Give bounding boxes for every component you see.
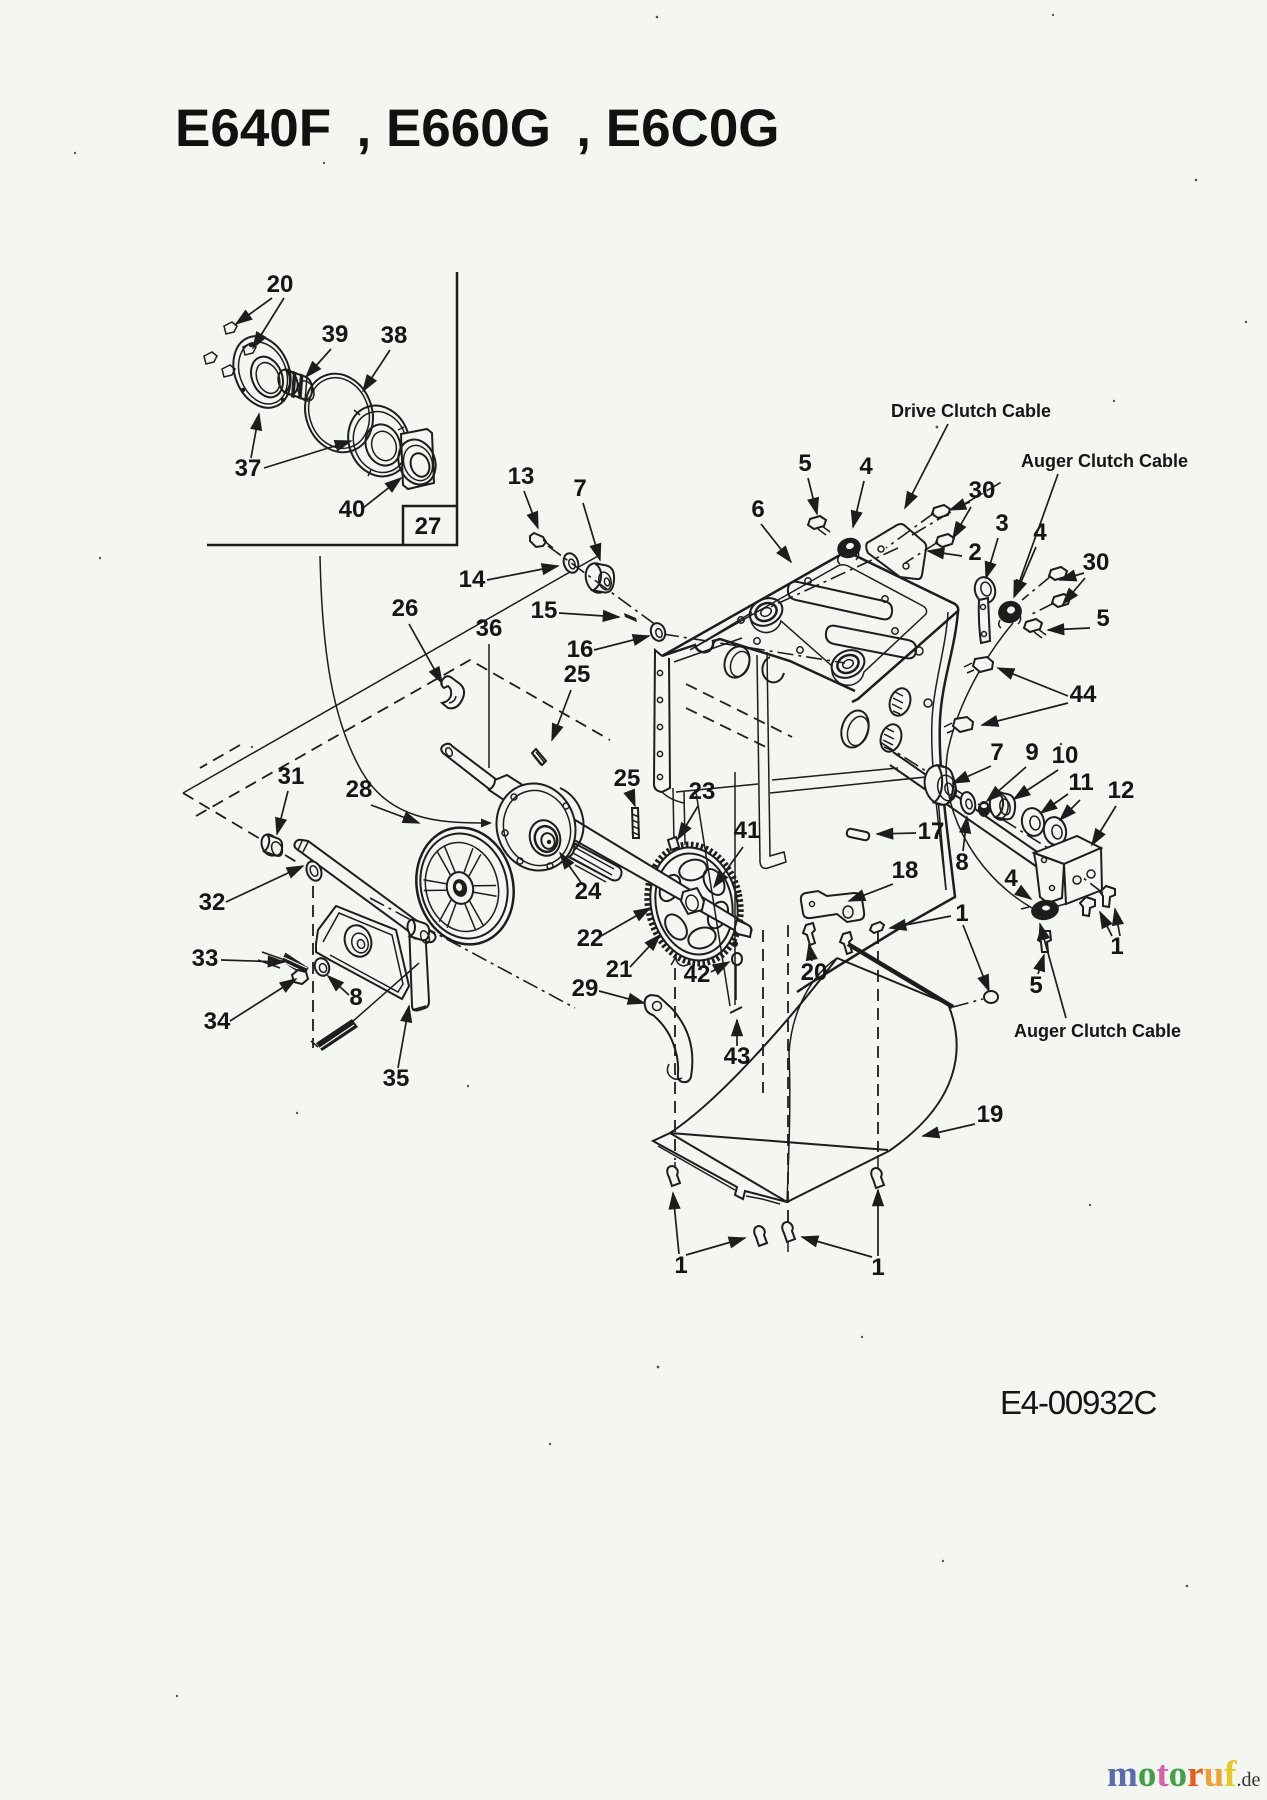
- svg-text:19: 19: [977, 1101, 1004, 1128]
- svg-text:1: 1: [674, 1252, 687, 1279]
- svg-text:39: 39: [322, 321, 349, 348]
- svg-text:4: 4: [1004, 865, 1018, 892]
- svg-text:24: 24: [575, 878, 602, 905]
- svg-text:16: 16: [567, 636, 594, 663]
- svg-text:20: 20: [801, 959, 828, 986]
- svg-text:1: 1: [1110, 933, 1123, 960]
- svg-text:35: 35: [383, 1065, 410, 1092]
- svg-text:1: 1: [871, 1254, 884, 1281]
- svg-text:28: 28: [346, 776, 373, 803]
- svg-text:9: 9: [1025, 739, 1038, 766]
- svg-text:26: 26: [392, 595, 419, 622]
- svg-text:2: 2: [968, 539, 981, 566]
- svg-text:Auger Clutch Cable: Auger Clutch Cable: [1021, 451, 1188, 471]
- svg-text:4: 4: [859, 453, 873, 480]
- svg-text:7: 7: [573, 475, 586, 502]
- svg-text:7: 7: [990, 739, 1003, 766]
- svg-text:12: 12: [1108, 777, 1135, 804]
- svg-text:5: 5: [798, 450, 811, 477]
- svg-text:22: 22: [577, 925, 604, 952]
- svg-text:23: 23: [689, 778, 716, 805]
- svg-text:3: 3: [995, 510, 1008, 537]
- svg-text:Drive Clutch Cable: Drive Clutch Cable: [891, 401, 1051, 421]
- svg-text:E4-00932C: E4-00932C: [1000, 1384, 1157, 1421]
- svg-text:29: 29: [572, 975, 599, 1002]
- svg-text:10: 10: [1052, 742, 1079, 769]
- svg-text:33: 33: [192, 945, 219, 972]
- svg-text:Auger Clutch Cable: Auger Clutch Cable: [1014, 1021, 1181, 1041]
- svg-text:32: 32: [199, 889, 226, 916]
- svg-text:8: 8: [349, 984, 362, 1011]
- svg-text:27: 27: [415, 513, 442, 540]
- svg-text:40: 40: [339, 496, 366, 523]
- svg-text:21: 21: [606, 956, 633, 983]
- svg-text:25: 25: [614, 765, 641, 792]
- svg-text:20: 20: [267, 271, 294, 298]
- svg-text:17: 17: [918, 818, 945, 845]
- svg-text:5: 5: [1096, 605, 1109, 632]
- svg-text:36: 36: [476, 615, 503, 642]
- svg-text:34: 34: [204, 1008, 231, 1035]
- svg-text:13: 13: [508, 463, 535, 490]
- svg-text:30: 30: [1083, 549, 1110, 576]
- svg-text:25: 25: [564, 661, 591, 688]
- svg-text:11: 11: [1068, 769, 1093, 796]
- svg-text:1: 1: [955, 900, 968, 927]
- svg-text:15: 15: [531, 597, 558, 624]
- svg-text:6: 6: [751, 496, 764, 523]
- svg-text:41: 41: [734, 817, 761, 844]
- svg-text:E640F , E660G , E6C0G: E640F , E660G , E6C0G: [175, 99, 780, 158]
- svg-text:14: 14: [459, 566, 486, 593]
- svg-text:18: 18: [892, 857, 919, 884]
- svg-text:8: 8: [955, 849, 968, 876]
- svg-text:38: 38: [381, 322, 408, 349]
- svg-text:42: 42: [684, 961, 711, 988]
- svg-text:31: 31: [278, 763, 305, 790]
- svg-text:5: 5: [1029, 972, 1042, 999]
- svg-text:44: 44: [1070, 681, 1097, 708]
- svg-text:37: 37: [235, 455, 262, 482]
